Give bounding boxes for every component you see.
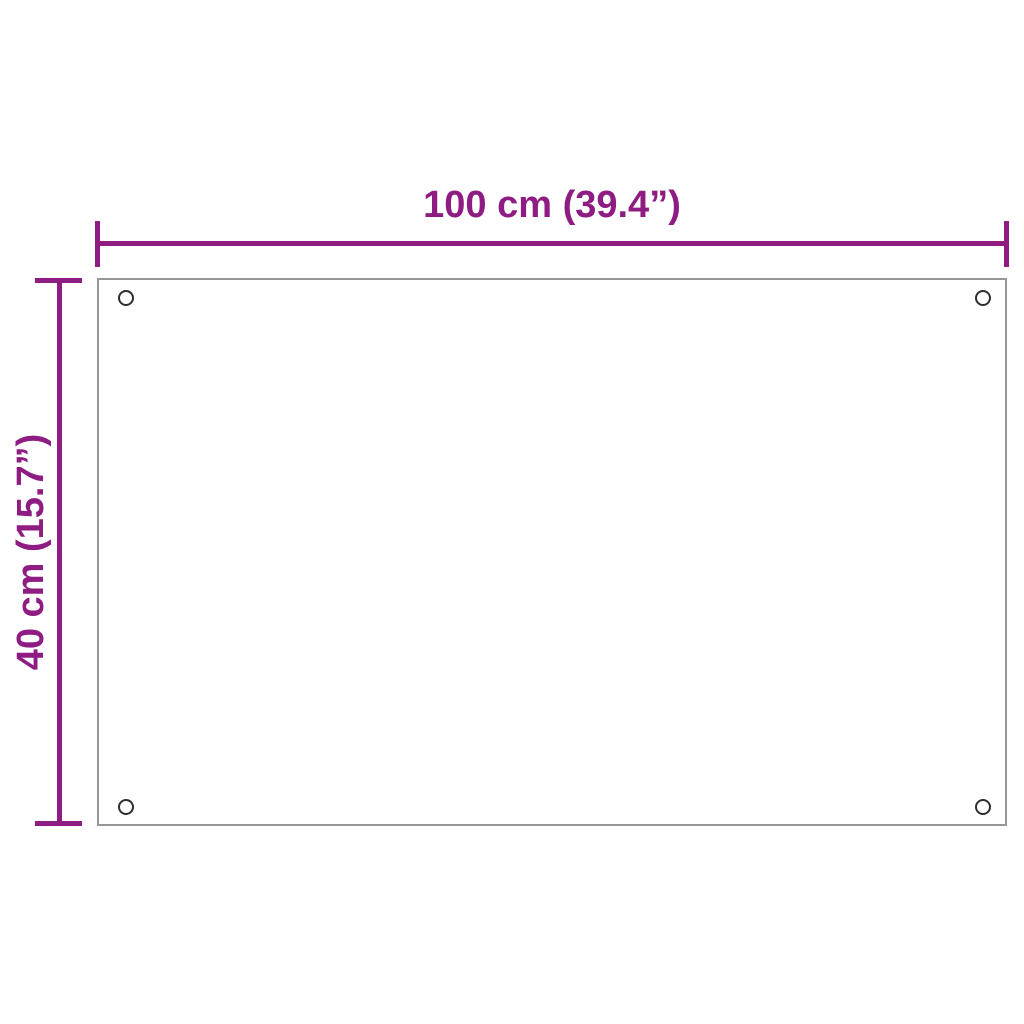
dimension-diagram: 100 cm (39.4”) 40 cm (15.7”) bbox=[0, 0, 1024, 1024]
height-dimension-top-tick bbox=[35, 278, 82, 283]
mounting-hole-bottom-left-icon bbox=[118, 799, 134, 815]
width-dimension-line bbox=[97, 241, 1007, 246]
height-dimension-bottom-tick bbox=[35, 821, 82, 826]
width-dimension-right-tick bbox=[1004, 221, 1009, 267]
width-dimension-label: 100 cm (39.4”) bbox=[97, 183, 1007, 229]
mounting-hole-top-left-icon bbox=[118, 290, 134, 306]
mounting-hole-bottom-right-icon bbox=[975, 799, 991, 815]
mounting-hole-top-right-icon bbox=[975, 290, 991, 306]
glass-panel-outline bbox=[97, 278, 1007, 826]
height-dimension-line bbox=[57, 278, 62, 826]
height-dimension-label: 40 cm (15.7”) bbox=[9, 434, 55, 671]
width-dimension-left-tick bbox=[95, 221, 100, 267]
